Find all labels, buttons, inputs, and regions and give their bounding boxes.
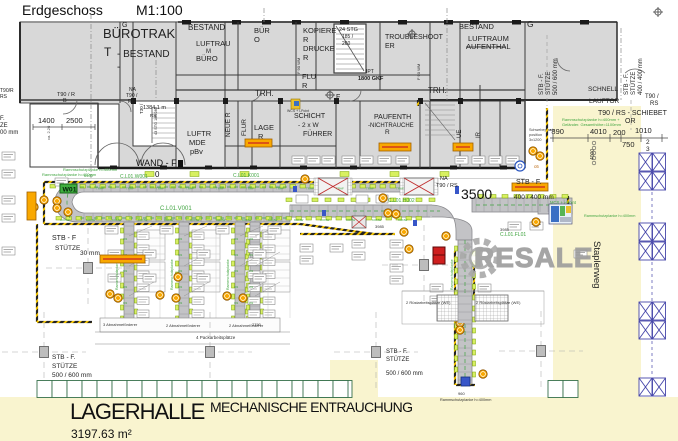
svg-text:2 Abnahmeförderer: 2 Abnahmeförderer [166, 323, 201, 328]
svg-text:500 / 600 mm: 500 / 600 mm [386, 371, 423, 377]
svg-text:RS: RS [0, 94, 8, 100]
svg-text:2790: 2790 [252, 322, 262, 327]
svg-text:M1:100: M1:100 [136, 2, 183, 18]
svg-text:STB - F.: STB - F. [52, 354, 76, 361]
svg-text:R: R [303, 53, 309, 62]
svg-text:R: R [303, 35, 309, 44]
svg-text:STB - F.: STB - F. [516, 179, 541, 186]
svg-text:2: 2 [646, 139, 650, 146]
svg-text:Rammschutzplanke: Rammschutzplanke [226, 259, 230, 290]
svg-text:W2: W2 [178, 253, 183, 257]
svg-text:TRAF: TRAF [336, 187, 344, 191]
svg-text:4010: 4010 [590, 127, 607, 136]
svg-text:F: F [336, 94, 340, 101]
svg-text:T90 / RS: T90 / RS [436, 183, 458, 189]
svg-text:W2: W2 [234, 253, 239, 257]
svg-text:STÜTZE: STÜTZE [630, 72, 637, 95]
svg-text:RB: RB [128, 99, 136, 105]
svg-text:STB - F.: STB - F. [624, 73, 630, 95]
svg-text:- BESTAND: - BESTAND [117, 49, 170, 60]
svg-text:TRAF: TRAF [396, 187, 404, 191]
svg-text:1800 GKF: 1800 GKF [358, 76, 384, 82]
svg-text:3197.63 m²: 3197.63 m² [71, 427, 132, 441]
svg-text:SCHICHT: SCHICHT [294, 113, 326, 120]
svg-text:C.L01.V001: C.L01.V001 [160, 206, 192, 212]
svg-text:C.L01.FL01: C.L01.FL01 [500, 232, 526, 238]
svg-text:24 STG: 24 STG [339, 27, 358, 33]
svg-text:PAUFENTH: PAUFENTH [374, 114, 411, 121]
svg-text:260: 260 [342, 41, 351, 47]
svg-text:LAGERHALLE: LAGERHALLE [70, 399, 205, 424]
svg-text:3985: 3985 [375, 224, 385, 229]
svg-text:W2: W2 [178, 237, 183, 241]
svg-text:TRAF: TRAF [276, 187, 284, 191]
svg-text:- 2 x W: - 2 x W [298, 122, 319, 129]
svg-text:NA: NA [440, 176, 448, 182]
svg-text:c6: c6 [534, 164, 539, 169]
svg-text:W2: W2 [123, 237, 128, 241]
svg-text:KONW: KONW [164, 218, 174, 222]
svg-text:NEUE R: NEUE R [225, 112, 232, 137]
svg-text:Rammschutzplanke h=400mm: Rammschutzplanke h=400mm [584, 214, 635, 218]
svg-text:0: 0 [155, 170, 160, 179]
svg-text:Staplerweg: Staplerweg [591, 241, 602, 289]
svg-text:KONW: KONW [320, 218, 330, 222]
svg-text:KONW: KONW [242, 218, 252, 222]
svg-text:30 mm: 30 mm [80, 250, 100, 257]
svg-text:B: B [63, 98, 67, 104]
svg-text:MECHANISCHE ENTRAUCHUNG: MECHANISCHE ENTRAUCHUNG [210, 399, 412, 415]
svg-text:FLU: FLU [302, 72, 316, 81]
svg-text:WAND - F: WAND - F [136, 158, 177, 168]
svg-text:Rammschutzplanke: Rammschutzplanke [170, 259, 174, 290]
svg-text:W2: W2 [178, 285, 183, 289]
svg-text:4 Packarbeitsplätze: 4 Packarbeitsplätze [196, 335, 236, 340]
svg-text:C.L01.K001: C.L01.K001 [233, 173, 260, 179]
svg-text:500 / 600 mm: 500 / 600 mm [52, 372, 92, 379]
svg-text:W2: W2 [234, 269, 239, 273]
svg-text:W2: W2 [234, 301, 239, 305]
svg-text:T90 / RS - SCHIEBET: T90 / RS - SCHIEBET [598, 110, 668, 117]
svg-text:W2: W2 [178, 269, 183, 273]
svg-text:TRH.: TRH. [428, 86, 447, 95]
svg-text:TRAF: TRAF [246, 187, 254, 191]
svg-text:C.L01.H002: C.L01.H002 [388, 198, 415, 204]
svg-text:KONW: KONW [372, 218, 382, 222]
svg-text:O: O [254, 35, 260, 44]
svg-text:STÜTZE: STÜTZE [545, 72, 552, 95]
svg-text:KONW: KONW [86, 218, 96, 222]
svg-text:1010: 1010 [635, 126, 652, 135]
svg-text:TRAF: TRAF [126, 187, 134, 191]
svg-text:TRAF: TRAF [96, 187, 104, 191]
svg-text:RS: RS [650, 101, 658, 107]
svg-text:MDE: MDE [189, 138, 206, 147]
svg-text:BÜR: BÜR [254, 26, 270, 35]
svg-text:KONW: KONW [398, 218, 408, 222]
svg-text:KONW: KONW [346, 218, 356, 222]
svg-text:ER: ER [385, 43, 395, 50]
svg-text:T30 /: T30 / [139, 103, 144, 114]
svg-text:STÜTZE: STÜTZE [386, 356, 409, 363]
svg-text:KONW: KONW [268, 218, 278, 222]
svg-text:BESTAND: BESTAND [459, 22, 494, 31]
svg-text:W01: W01 [63, 186, 77, 193]
svg-text:BÜROTRAK: BÜROTRAK [103, 26, 176, 41]
svg-text:TRAF: TRAF [186, 187, 194, 191]
svg-text:3: 3 [646, 146, 650, 153]
svg-text:OR: OR [625, 118, 636, 125]
svg-text:WCS + i-Point: WCS + i-Point [287, 109, 309, 113]
svg-text:-: - [117, 62, 120, 73]
svg-text:W2: W2 [249, 301, 254, 305]
svg-text:position: position [529, 133, 542, 137]
svg-text:KONW: KONW [190, 218, 200, 222]
svg-text:T: T [104, 45, 112, 59]
svg-text:TRH.: TRH. [255, 89, 274, 98]
svg-text:BESTAND: BESTAND [188, 23, 225, 32]
svg-text:STÜTZE: STÜTZE [52, 362, 78, 370]
svg-text:SCHNELL: SCHNELL [588, 86, 618, 93]
svg-text:3985: 3985 [500, 227, 510, 232]
svg-text:LAGE: LAGE [254, 123, 274, 132]
svg-text:W2: W2 [249, 269, 254, 273]
svg-text:Geländer. Gesamthöhe=1100mm: Geländer. Gesamthöhe=1100mm [562, 122, 622, 127]
svg-text:STB - F.: STB - F. [386, 349, 408, 355]
svg-text:F 90 WM: F 90 WM [416, 64, 421, 80]
svg-text:G: G [122, 22, 127, 29]
svg-text:KONW: KONW [60, 218, 70, 222]
svg-text:STÜTZE: STÜTZE [55, 244, 81, 252]
svg-text:T90 /: T90 / [645, 94, 659, 100]
svg-text:STB - F.: STB - F. [539, 73, 545, 95]
svg-text:750: 750 [622, 140, 635, 149]
svg-text:W2: W2 [234, 237, 239, 241]
svg-text:FÜHRER: FÜHRER [303, 130, 332, 138]
svg-text:DRUCKE: DRUCKE [303, 44, 335, 53]
svg-text:185 /: 185 / [342, 34, 354, 40]
svg-text:KOPIERE: KOPIERE [303, 26, 336, 35]
svg-text:KONW: KONW [112, 218, 122, 222]
svg-text:RESALE: RESALE [474, 242, 594, 273]
svg-text:2 Rüstarbeitsplätze (WE): 2 Rüstarbeitsplätze (WE) [406, 300, 451, 305]
svg-text:IPT: IPT [366, 69, 374, 75]
svg-text:400 / 400 mm: 400 / 400 mm [514, 194, 554, 201]
svg-text:TRAF: TRAF [306, 187, 314, 191]
svg-text:pBv: pBv [190, 147, 203, 156]
svg-text:2500: 2500 [66, 116, 83, 125]
svg-text:Rammschutzplanke: Rammschutzplanke [450, 259, 454, 290]
svg-text:Schwebeplante: Schwebeplante [529, 128, 555, 132]
svg-text:TRAF: TRAF [156, 187, 164, 191]
svg-text:Rammschutzplanke: Rammschutzplanke [115, 259, 119, 290]
svg-text:BÜRO: BÜRO [196, 54, 218, 63]
svg-text:3 Abnahmeförderer: 3 Abnahmeförderer [103, 322, 138, 327]
svg-text:ca. 2.20: ca. 2.20 [46, 125, 51, 140]
svg-text:FLUR: FLUR [241, 119, 248, 136]
svg-text:KONW: KONW [138, 218, 148, 222]
svg-text:G: G [527, 19, 534, 29]
svg-text:R: R [302, 81, 308, 90]
svg-text:3x1200: 3x1200 [529, 138, 541, 142]
svg-text:R: R [385, 129, 390, 136]
svg-text:2 Rüstarbeitsplätze (WE): 2 Rüstarbeitsplätze (WE) [476, 300, 521, 305]
svg-text:500 / 600 mm: 500 / 600 mm [553, 58, 559, 95]
svg-text:Rammschutzplanke h=400mm: Rammschutzplanke h=400mm [42, 172, 97, 177]
svg-text:W2: W2 [249, 237, 254, 241]
svg-text:IR: IR [476, 131, 482, 138]
svg-text:1400: 1400 [38, 116, 55, 125]
svg-text:ZE: ZE [0, 123, 8, 129]
svg-text:W2: W2 [123, 285, 128, 289]
svg-text:W2: W2 [249, 285, 254, 289]
svg-text:LUFTRAU: LUFTRAU [196, 39, 231, 48]
svg-text:-NICHTRAUCHE: -NICHTRAUCHE [368, 123, 414, 129]
svg-text:F 90 WM: F 90 WM [296, 58, 301, 74]
svg-text:AUFENTHAL: AUFENTHAL [466, 42, 511, 51]
svg-text:43 STG 188/280: 43 STG 188/280 [154, 107, 158, 135]
svg-text:TROUBLESHOOT: TROUBLESHOOT [385, 34, 444, 41]
svg-text:UE: UE [457, 130, 463, 138]
svg-text:TRAF: TRAF [216, 187, 224, 191]
svg-text:KONW: KONW [294, 218, 304, 222]
svg-text:TRAF: TRAF [366, 187, 374, 191]
svg-text:KONW: KONW [216, 218, 226, 222]
svg-text:960: 960 [458, 391, 465, 396]
svg-text:STB - F: STB - F [52, 235, 76, 242]
svg-text:W2: W2 [123, 269, 128, 273]
svg-text:400 / 400 mm: 400 / 400 mm [638, 58, 644, 95]
svg-text:LUFTR: LUFTR [187, 129, 212, 138]
svg-text:C.L01.W001: C.L01.W001 [120, 174, 148, 180]
svg-text:W2: W2 [234, 285, 239, 289]
svg-text:F.: F. [0, 116, 5, 122]
svg-text:W2: W2 [123, 301, 128, 305]
svg-text:3500: 3500 [461, 186, 492, 202]
svg-text:200: 200 [613, 128, 626, 137]
svg-text:00 mm: 00 mm [0, 130, 18, 136]
svg-text:LAUFTOR: LAUFTOR [589, 98, 620, 105]
svg-text:Rammschutzplanke h=400mm: Rammschutzplanke h=400mm [440, 398, 491, 402]
